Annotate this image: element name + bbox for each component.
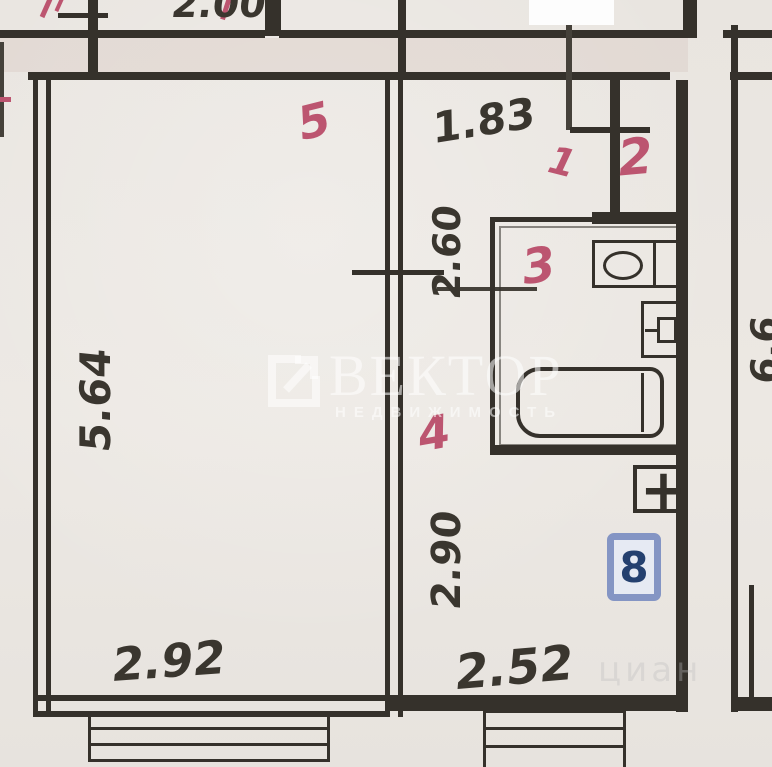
- sink-basin: [657, 317, 677, 343]
- window-left-line1: [91, 727, 327, 730]
- dim-tick-top-left: [58, 13, 108, 18]
- dim-room5-width: 2.92: [109, 630, 228, 692]
- wall-stub-d: [566, 24, 572, 130]
- unit-number-badge: 8: [607, 533, 661, 601]
- dim-hall-height: 2.60: [423, 189, 471, 314]
- bathtub-rim-line: [641, 373, 644, 432]
- wall-stub-c: [398, 0, 406, 80]
- window-left: [88, 712, 330, 762]
- watermark-brand: ВЕКТОР: [329, 342, 563, 409]
- bathroom-wall-bottom-thick: [490, 445, 687, 455]
- top-wall-band: [0, 38, 688, 72]
- plus-mark: +: [640, 458, 687, 523]
- room-label-1: 1: [544, 137, 580, 186]
- wall-right-outer-2: [749, 585, 754, 700]
- window-right-line2: [486, 745, 623, 748]
- wall-left-edge-partial: [0, 42, 4, 137]
- sink-tap-line: [645, 329, 657, 332]
- vektor-logo-icon: [261, 350, 323, 412]
- room-label-5: 5: [292, 91, 336, 151]
- wall-stub-b: [265, 0, 281, 36]
- wall-left-outer: [33, 78, 38, 717]
- red-annotation-mark-left: [0, 97, 11, 102]
- dim-kitchen-width: 2.52: [453, 635, 576, 702]
- floor-plan: + 8 2.00 1.83 5.64 2.92 2.60 2.90 2.52 6…: [0, 0, 772, 767]
- wall-top-inner: [28, 72, 670, 80]
- window-right: [483, 710, 626, 767]
- wall-top-outer-mid: [279, 30, 688, 38]
- wall-stub-e: [683, 0, 697, 38]
- wall-bottom-left-a: [33, 695, 386, 701]
- wall-right-outer: [731, 25, 738, 712]
- red-annotation-mark-top2: [55, 0, 66, 12]
- dim-kitchen-height: 2.90: [423, 495, 471, 624]
- window-left-line2: [91, 743, 327, 746]
- faint-watermark: циан: [598, 650, 702, 690]
- wall-bottom-right: [386, 695, 688, 711]
- wall-stub-a: [88, 0, 98, 80]
- dim-room5-height: 5.64: [70, 327, 120, 472]
- watermark: ВЕКТОР НЕДВИЖИМОСТЬ: [255, 342, 585, 428]
- dim-right-room-partial: 6.6: [740, 297, 772, 402]
- wall-bottom-far-right: [731, 697, 772, 711]
- red-annotation-mark-top1: [40, 0, 54, 18]
- room-label-2: 2: [616, 127, 656, 188]
- unit-number: 8: [619, 543, 648, 592]
- wall-left-inner: [46, 78, 51, 717]
- dim-hall-width: 1.83: [432, 88, 535, 154]
- watermark-subtitle: НЕДВИЖИМОСТЬ: [335, 404, 563, 421]
- white-patch: [529, 0, 614, 25]
- toilet-bowl: [603, 251, 643, 280]
- wall-top-outer-left: [0, 30, 265, 38]
- window-right-line1: [486, 727, 623, 730]
- dim-top-partial: 2.00: [169, 0, 269, 26]
- toilet-cistern-line: [653, 242, 656, 286]
